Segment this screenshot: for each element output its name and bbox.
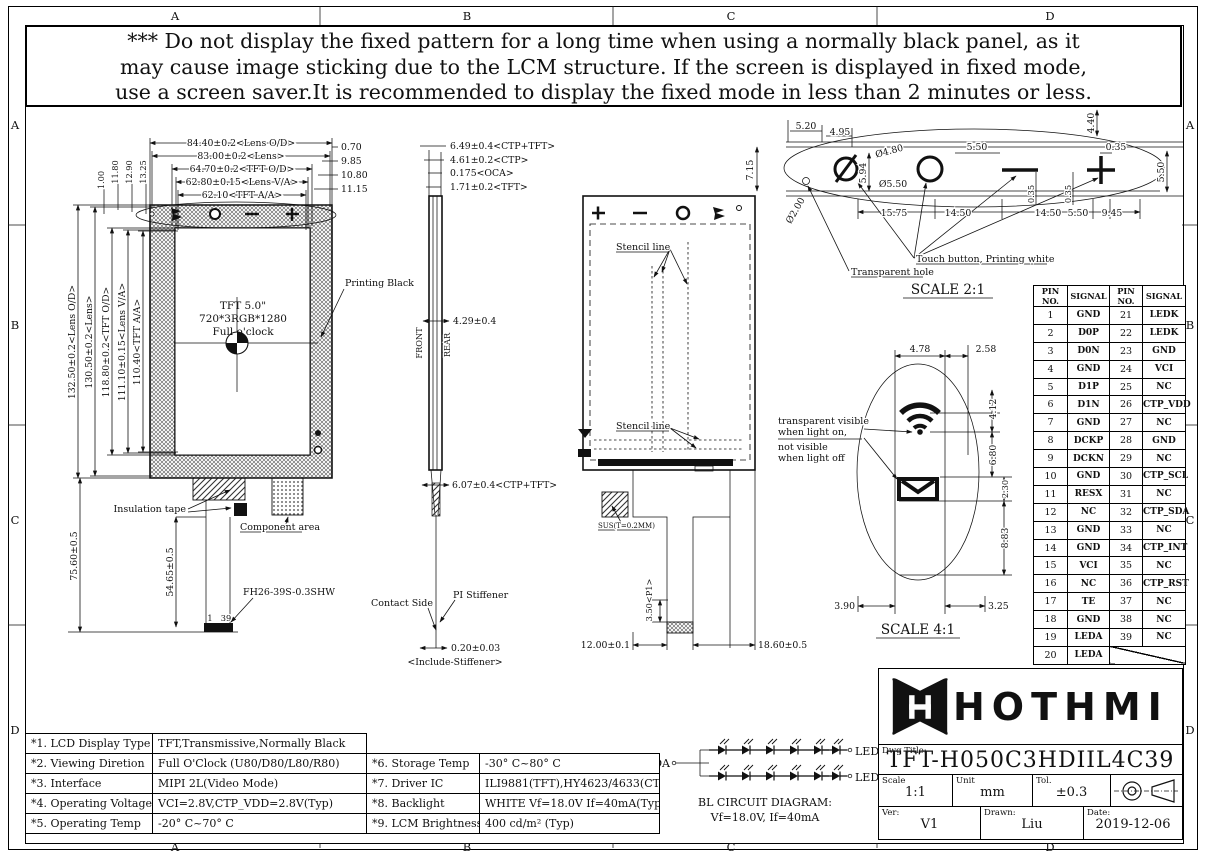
date-value: 2019-12-06 xyxy=(1084,817,1182,832)
stiffener xyxy=(432,483,440,516)
dim-label: 8.83 xyxy=(1000,528,1011,549)
dim-label: 5.20 xyxy=(796,121,817,132)
spec-row: *2. Viewing Diretion Full O'Clock (U80/D… xyxy=(26,754,367,774)
pin-number: 32 xyxy=(1110,503,1143,521)
pin-col-header: PIN NO. xyxy=(1110,286,1143,307)
ring-icon xyxy=(677,207,689,219)
dim-label: 11.80 xyxy=(110,160,120,183)
spec-row: *9. LCM Brightness 400 cd/m² (Typ) xyxy=(367,813,660,833)
spec-value: Full O'Clock (U80/D80/L80/R80) xyxy=(153,754,367,774)
panel-spec-line: Full o'clock xyxy=(212,326,274,338)
spec-value: -30° C~80° C xyxy=(480,753,660,773)
tol-value: ±0.3 xyxy=(1033,785,1110,800)
sus-label: SUS(T=0.2MM) xyxy=(598,522,655,530)
pin-number: 10 xyxy=(1034,468,1068,486)
pin-signal: CTP_SDA xyxy=(1143,503,1186,521)
pin-signal: NC xyxy=(1068,503,1110,521)
pin-number: 9 xyxy=(1034,450,1068,468)
pin-table-row: 20 LEDA xyxy=(1034,646,1186,664)
touch-symbol-row xyxy=(592,206,742,221)
pin-number: 12 xyxy=(1034,503,1068,521)
pin-table-row: 11 RESX 31 NC xyxy=(1034,485,1186,503)
pin-signal: VCI xyxy=(1143,360,1186,378)
dim-label: 3.90 xyxy=(834,601,855,612)
spec-table-right: *6. Storage Temp -30° C~80° C *7. Driver… xyxy=(366,753,660,834)
pin-number: 13 xyxy=(1034,521,1068,539)
pin-signal: RESX xyxy=(1068,485,1110,503)
zone-left-b: B xyxy=(11,318,19,332)
pin-number: 39 xyxy=(1110,629,1143,647)
dim-note: <Include-Stiffener> xyxy=(407,657,502,668)
pin-table-row: 19 LEDA 39 NC xyxy=(1034,629,1186,647)
pin-number: 18 xyxy=(1034,611,1068,629)
spec-table-right-body: *6. Storage Temp -30° C~80° C *7. Driver… xyxy=(367,753,660,833)
front-view: 84.40±0.2<Lens O/D> 83.00±0.2<Lens> 64.7… xyxy=(67,138,414,632)
dim-label: 54.65±0.5 xyxy=(165,547,176,596)
rear-connector xyxy=(667,622,693,633)
pin-signal: NC xyxy=(1143,521,1186,539)
drawn-value: Liu xyxy=(981,817,1083,832)
spec-value: WHITE Vf=18.0V If=40mA(Typ) xyxy=(480,793,660,813)
projection-symbol-icon xyxy=(1112,776,1180,806)
hole-icon xyxy=(737,206,742,211)
dwg-title: TFT-H050C3HDIIL4C39 xyxy=(879,748,1182,773)
detail-bubble xyxy=(857,364,979,580)
dim-label: 4.29±0.4 xyxy=(453,316,496,327)
spec-label: *2. Viewing Diretion xyxy=(26,754,153,774)
pin-table-empty-cell xyxy=(1110,646,1186,664)
projection-cell xyxy=(1111,775,1182,806)
dim-label: 4.40 xyxy=(1086,113,1097,134)
spec-row: *1. LCD Display Type TFT,Transmissive,No… xyxy=(26,734,367,754)
dim-label: 5.50 xyxy=(1068,208,1089,219)
pin-table-row: 10 GND 30 CTP_SCL xyxy=(1034,468,1186,486)
wifi-icon xyxy=(901,405,939,435)
dim-label: 7.15 xyxy=(745,160,756,181)
spec-row: *3. Interface MIPI 2L(Video Mode) xyxy=(26,774,367,794)
pin-table-row: 2 D0P 22 LEDK xyxy=(1034,324,1186,342)
pin1-label: 1 xyxy=(207,613,212,623)
pin-number: 34 xyxy=(1110,539,1143,557)
pi-stiffener-label: PI Stiffener xyxy=(453,590,509,601)
pin-number: 1 xyxy=(1034,307,1068,325)
spec-row: *5. Operating Temp -20° C~70° C xyxy=(26,814,367,834)
zone-right-b: B xyxy=(1186,318,1194,332)
side-view: 6.49±0.4<CTP+TFT> 4.61±0.2<CTP> 0.175<OC… xyxy=(371,141,557,668)
rear-fpc xyxy=(633,470,755,650)
pin-signal: D1N xyxy=(1068,396,1110,414)
pin-signal: D1P xyxy=(1068,378,1110,396)
dim-label: 64.70±0.2<TFT O/D> xyxy=(190,164,295,175)
zone-bottom-b: B xyxy=(463,840,471,852)
unit-cell: Unit mm xyxy=(953,775,1033,806)
drawn-cell: Drawn: Liu xyxy=(981,807,1084,839)
pin-signal: CTP_SCL xyxy=(1143,468,1186,486)
pin-number: 35 xyxy=(1110,557,1143,575)
transparent-note-line: transparent visible xyxy=(778,416,869,427)
dim-label: 10.80 xyxy=(341,170,368,181)
pin-signal: CTP_INT xyxy=(1143,539,1186,557)
component-area-label: Component area xyxy=(240,522,320,533)
spec-label: *3. Interface xyxy=(26,774,153,794)
front-label: FRONT xyxy=(414,327,424,359)
plus-icon xyxy=(592,207,605,220)
pin-table-header: PIN NO. SIGNAL PIN NO. SIGNAL xyxy=(1034,286,1186,307)
pin-number: 33 xyxy=(1110,521,1143,539)
dim-label: 0.20±0.03 xyxy=(451,643,500,654)
pin-signal: NC xyxy=(1143,611,1186,629)
zone-right-d: D xyxy=(1185,723,1194,737)
pin-signal: CTP_VDD xyxy=(1143,396,1186,414)
spec-value: -20° C~70° C xyxy=(153,814,367,834)
pin-signal: LEDA xyxy=(1068,629,1110,647)
signal-col-header: SIGNAL xyxy=(1143,286,1186,307)
dim-label: 4.95 xyxy=(830,127,851,138)
pin-signal: GND xyxy=(1068,468,1110,486)
dim-label: 84.40±0.2<Lens O/D> xyxy=(187,138,295,149)
pin-table-row: 12 NC 32 CTP_SDA xyxy=(1034,503,1186,521)
pin-signal: D0P xyxy=(1068,324,1110,342)
pin-number: 6 xyxy=(1034,396,1068,414)
spec-label: *7. Driver IC xyxy=(367,773,480,793)
pin-signal: NC xyxy=(1068,575,1110,593)
spec-value: TFT,Transmissive,Normally Black xyxy=(153,734,367,754)
version-row: Ver: V1 Drawn: Liu Date: 2019-12-06 xyxy=(879,807,1182,839)
spec-label: *5. Operating Temp xyxy=(26,814,153,834)
dim-label: 15.75 xyxy=(881,208,908,219)
dim-label: 130.50±0.2<Lens> xyxy=(84,295,95,388)
pin-number: 3 xyxy=(1034,342,1068,360)
bl-diagram-subtitle: Vf=18.0V, If=40mA xyxy=(710,811,821,824)
dim-label: 6.49±0.4<CTP+TFT> xyxy=(450,141,555,152)
dim-label: 5.94 xyxy=(858,163,869,184)
spec-value: MIPI 2L(Video Mode) xyxy=(153,774,367,794)
pin-number: 28 xyxy=(1110,432,1143,450)
pin-col-header: PIN NO. xyxy=(1034,286,1068,307)
mail-window-icon xyxy=(578,449,591,457)
dim-label: 118.80±0.2<TFT O/D> xyxy=(101,287,112,398)
pin-table: PIN NO. SIGNAL PIN NO. SIGNAL 1 GND 21 L… xyxy=(1033,285,1186,665)
warning-line: may cause image sticking due to the LCM … xyxy=(27,55,1180,81)
dim-label: 110.40<TFT A/A> xyxy=(132,299,143,385)
pin-number: 36 xyxy=(1110,575,1143,593)
zone-top-b: B xyxy=(463,9,471,23)
pin-number: 16 xyxy=(1034,575,1068,593)
pin-signal: CTP_RST xyxy=(1143,575,1186,593)
spec-label: *4. Operating Voltage xyxy=(26,794,153,814)
wifi-window-icon xyxy=(315,430,321,436)
dim-label: Ø2.00 xyxy=(784,196,808,226)
pin-signal: DCKN xyxy=(1068,450,1110,468)
fpc-connector xyxy=(204,623,233,632)
pin-signal: GND xyxy=(1068,539,1110,557)
pin-table-row: 15 VCI 35 NC xyxy=(1034,557,1186,575)
dim-label: 0.35 xyxy=(1026,185,1036,203)
dim-label: 6.07±0.4<CTP+TFT> xyxy=(452,480,557,491)
tape-target xyxy=(234,503,247,516)
transparent-note-line: when light on, xyxy=(778,427,847,438)
component-area-region xyxy=(272,478,303,515)
dim-label: 1.71±0.2<TFT> xyxy=(450,182,528,193)
pin-table-row: 1 GND 21 LEDK xyxy=(1034,307,1186,325)
pin-signal: LEDA xyxy=(1068,646,1110,664)
dim-label: 3.50<P1> xyxy=(644,579,654,622)
detail-bubble xyxy=(784,129,1164,207)
dim-label: 2.58 xyxy=(976,344,997,355)
ver-value: V1 xyxy=(879,817,980,832)
zone-top-c: C xyxy=(727,9,736,23)
dim-label: 12.00±0.1 xyxy=(581,640,630,651)
pin-table-row: 4 GND 24 VCI xyxy=(1034,360,1186,378)
pin-number: 11 xyxy=(1034,485,1068,503)
dim-label: 62.10<TFT A/A> xyxy=(202,190,283,201)
dim-label: 2.30 xyxy=(1000,480,1010,498)
dim-label: 13.25 xyxy=(138,160,148,183)
zone-left-d: D xyxy=(10,723,19,737)
pin-number: 5 xyxy=(1034,378,1068,396)
touch-button-icons xyxy=(803,155,1116,185)
pin-table-body: 1 GND 21 LEDK 2 D0P 22 LEDK 3 D0N 23 GND xyxy=(1034,307,1186,647)
pin-signal: DCKP xyxy=(1068,432,1110,450)
pin-number: 8 xyxy=(1034,432,1068,450)
printing-black-label: Printing Black xyxy=(345,278,414,289)
dim-label: 14.50 xyxy=(1035,208,1062,219)
zone-top-d: D xyxy=(1045,9,1054,23)
dim-label: 4.12 xyxy=(988,399,999,420)
pin-signal: GND xyxy=(1068,611,1110,629)
zone-top-a: A xyxy=(170,9,180,23)
dim-label: 0.70 xyxy=(341,142,362,153)
pin-number: 17 xyxy=(1034,593,1068,611)
stencil-line-label: Stencil line xyxy=(616,421,671,432)
pin-table-row: 5 D1P 25 NC xyxy=(1034,378,1186,396)
hole-icon xyxy=(150,212,154,216)
pin-table-row: 3 D0N 23 GND xyxy=(1034,342,1186,360)
spec-value: 400 cd/m² (Typ) xyxy=(480,813,660,833)
spec-table-left-body: *1. LCD Display Type TFT,Transmissive,No… xyxy=(26,734,367,834)
pin-signal: GND xyxy=(1068,521,1110,539)
spec-row: *4. Operating Voltage VCI=2.8V,CTP_VDD=2… xyxy=(26,794,367,814)
pin-number: 4 xyxy=(1034,360,1068,378)
contact-side-label: Contact Side xyxy=(371,598,433,609)
dim-label: 11.15 xyxy=(341,184,368,195)
zone-right-a: A xyxy=(1185,118,1195,132)
pin-number: 2 xyxy=(1034,324,1068,342)
pin-number: 7 xyxy=(1034,414,1068,432)
zone-bottom-a: A xyxy=(170,840,180,852)
panel-spec-line: TFT 5.0" xyxy=(220,300,266,312)
ring-icon xyxy=(918,157,942,181)
pin-number: 14 xyxy=(1034,539,1068,557)
zone-left-c: C xyxy=(11,513,20,527)
dim-label: 9.85 xyxy=(341,156,362,167)
spec-label: *9. LCM Brightness xyxy=(367,813,480,833)
pin-number: 25 xyxy=(1110,378,1143,396)
dwg-title-row: Dwg Title: TFT-H050C3HDIIL4C39 xyxy=(879,745,1182,775)
pin-number: 19 xyxy=(1034,629,1068,647)
sus-plate xyxy=(602,492,628,517)
plus-icon xyxy=(1087,156,1115,184)
spec-row: *8. Backlight WHITE Vf=18.0V If=40mA(Typ… xyxy=(367,793,660,813)
bl-diagram-title: BL CIRCUIT DIAGRAM: xyxy=(698,796,832,809)
pin-number: 23 xyxy=(1110,342,1143,360)
panel-spec-line: 720*3RGB*1280 xyxy=(199,313,287,325)
warning-line: *** Do not display the fixed pattern for… xyxy=(27,29,1180,55)
pin-signal: NC xyxy=(1143,593,1186,611)
touch-button-label: Touch button, Printing white xyxy=(916,254,1055,265)
pin-number: 27 xyxy=(1110,414,1143,432)
side-profile xyxy=(429,196,442,470)
pin-number: 37 xyxy=(1110,593,1143,611)
dim-label: 4.61±0.2<CTP> xyxy=(450,155,528,166)
pin-signal: GND xyxy=(1068,307,1110,325)
transparent-note-line: when light off xyxy=(778,453,846,464)
transparent-note-line: not visible xyxy=(778,442,828,453)
tol-cell: Tol. ±0.3 xyxy=(1033,775,1111,806)
pin-table-header-row: PIN NO. SIGNAL PIN NO. SIGNAL xyxy=(1034,286,1186,307)
spec-label: *6. Storage Temp xyxy=(367,753,480,773)
pin39-label: 39 xyxy=(221,613,231,623)
scale-cell: Scale 1:1 xyxy=(879,775,953,806)
dim-label: 62.80±0.15<Lens V/A> xyxy=(186,177,299,188)
spec-value: ILI9881(TFT),HY4623/4633(CTP) xyxy=(480,773,660,793)
mail-icon xyxy=(899,479,937,499)
zone-bottom-d: D xyxy=(1045,840,1054,852)
hothmi-logo-icon xyxy=(891,674,949,740)
mail-window-icon xyxy=(315,447,322,454)
pin-table-last: 20 LEDA xyxy=(1034,646,1186,664)
drawing-sheet: A B C D A B C D A B C D A B C D xyxy=(0,0,1206,852)
led-row-2 xyxy=(709,765,847,781)
pin-signal: GND xyxy=(1143,342,1186,360)
pin-signal: TE xyxy=(1068,593,1110,611)
led-row-1 xyxy=(709,739,847,755)
spec-row: *6. Storage Temp -30° C~80° C xyxy=(367,753,660,773)
spec-label: *1. LCD Display Type xyxy=(26,734,153,754)
pin-signal: NC xyxy=(1143,485,1186,503)
dim-label: 132.50±0.2<Lens O/D> xyxy=(67,285,78,399)
dim-label: 9.45 xyxy=(1102,208,1123,219)
pin-table-row: 6 D1N 26 CTP_VDD xyxy=(1034,396,1186,414)
title-block: HOTHMI Dwg Title: TFT-H050C3HDIIL4C39 Sc… xyxy=(878,668,1183,840)
unit-value: mm xyxy=(953,785,1032,800)
dim-label: Ø4.80 xyxy=(874,143,904,161)
pin-table-row: 18 GND 38 NC xyxy=(1034,611,1186,629)
pin-number: 31 xyxy=(1110,485,1143,503)
insulation-tape-area xyxy=(193,478,245,500)
detail-scale-4-1: 4.78 2.58 4.12 6.80 2.30 8.83 3.90 3.25 … xyxy=(778,344,1012,638)
dim-label: Ø5.50 xyxy=(879,179,907,190)
connector-label: FH26-39S-0.3SHW xyxy=(243,587,335,598)
scale-row: Scale 1:1 Unit mm Tol. ±0.3 xyxy=(879,775,1182,807)
stencil-line-label: Stencil line xyxy=(616,242,671,253)
pin-signal: GND xyxy=(1068,414,1110,432)
scale-4-1-label: SCALE 4:1 xyxy=(881,622,955,638)
pin-table-row: 7 GND 27 NC xyxy=(1034,414,1186,432)
pin-number: 22 xyxy=(1110,324,1143,342)
rear-label: REAR xyxy=(442,332,452,357)
dim-label: 0.35 xyxy=(1106,142,1127,153)
signal-col-header: SIGNAL xyxy=(1068,286,1110,307)
pin-signal: NC xyxy=(1143,557,1186,575)
logo-row: HOTHMI xyxy=(879,669,1182,745)
pin-signal: NC xyxy=(1143,414,1186,432)
pin-table-row: 9 DCKN 29 NC xyxy=(1034,450,1186,468)
pin-number: 29 xyxy=(1110,450,1143,468)
dim-label: 14.50 xyxy=(945,208,972,219)
pin-table-row: 16 NC 36 CTP_RST xyxy=(1034,575,1186,593)
date-cell: Date: 2019-12-06 xyxy=(1084,807,1182,839)
dim-label: 5.50 xyxy=(1156,162,1167,183)
pin-table-row: 8 DCKP 28 GND xyxy=(1034,432,1186,450)
phone-icon xyxy=(713,207,725,220)
spec-table-left: *1. LCD Display Type TFT,Transmissive,No… xyxy=(25,733,367,834)
dim-label: 0.35 xyxy=(1063,185,1073,203)
pin-signal: VCI xyxy=(1068,557,1110,575)
zone-bottom-c: C xyxy=(727,840,736,852)
pin-signal: NC xyxy=(1143,450,1186,468)
dim-label: 6.80 xyxy=(988,445,999,466)
ver-cell: Ver: V1 xyxy=(879,807,981,839)
detail-scale-2-1: 5.20 4.95 7.15 Ø2.00 Ø4.80 Ø5.50 5.94 5.… xyxy=(745,110,1183,298)
transparent-hole-icon xyxy=(803,178,810,185)
warning-note: *** Do not display the fixed pattern for… xyxy=(25,25,1182,107)
pin-signal: LEDK xyxy=(1143,324,1186,342)
pin-signal: D0N xyxy=(1068,342,1110,360)
scale-value: 1:1 xyxy=(879,785,952,800)
pin-number: 15 xyxy=(1034,557,1068,575)
transparent-hole-label: Transparent hole xyxy=(851,267,934,278)
spec-row: *7. Driver IC ILI9881(TFT),HY4623/4633(C… xyxy=(367,773,660,793)
fpc-tail xyxy=(206,500,230,623)
dim-label: 83.00±0.2<Lens> xyxy=(197,151,284,162)
spec-value: VCI=2.8V,CTP_VDD=2.8V(Typ) xyxy=(153,794,367,814)
pin-signal: NC xyxy=(1143,629,1186,647)
pin-signal: LEDK xyxy=(1143,307,1186,325)
pin-number: 24 xyxy=(1110,360,1143,378)
ring-icon xyxy=(210,209,220,219)
pin-number: 20 xyxy=(1034,646,1068,664)
dim-label: 3.25 xyxy=(988,601,1009,612)
brand-name: HOTHMI xyxy=(953,685,1169,729)
dim-label: 12.90 xyxy=(124,160,134,183)
pin-signal: NC xyxy=(1143,378,1186,396)
pin-table-row: 17 TE 37 NC xyxy=(1034,593,1186,611)
insulation-tape-label: Insulation tape xyxy=(114,504,187,515)
dim-label: 75.60±0.5 xyxy=(69,531,80,580)
pin-number: 26 xyxy=(1110,396,1143,414)
dim-label: 5.50 xyxy=(967,142,988,153)
spec-label: *8. Backlight xyxy=(367,793,480,813)
rear-bar xyxy=(598,459,733,466)
pin-number: 21 xyxy=(1110,307,1143,325)
rear-view: Stencil line Stencil line SUS(T=0.2MM) 3… xyxy=(578,196,807,651)
pin-table-row: 13 GND 33 NC xyxy=(1034,521,1186,539)
pin-signal: GND xyxy=(1068,360,1110,378)
pin-table-row: 14 GND 34 CTP_INT xyxy=(1034,539,1186,557)
dim-label: 111.10±0.15<Lens V/A> xyxy=(117,283,128,402)
scale-2-1-label: SCALE 2:1 xyxy=(911,282,985,298)
pin-number: 38 xyxy=(1110,611,1143,629)
bl-circuit-diagram: LEDA LEDK1 LEDK2 BL CIRCUIT DIAGRAM: Vf=… xyxy=(638,739,894,824)
pin-signal: GND xyxy=(1143,432,1186,450)
zone-left-a: A xyxy=(10,118,20,132)
dim-label: 18.60±0.5 xyxy=(758,640,807,651)
pin-number: 30 xyxy=(1110,468,1143,486)
dim-label: 0.175<OCA> xyxy=(450,168,514,179)
dim-label: 4.78 xyxy=(910,344,931,355)
warning-line: use a screen saver.It is recommended to … xyxy=(27,80,1180,106)
